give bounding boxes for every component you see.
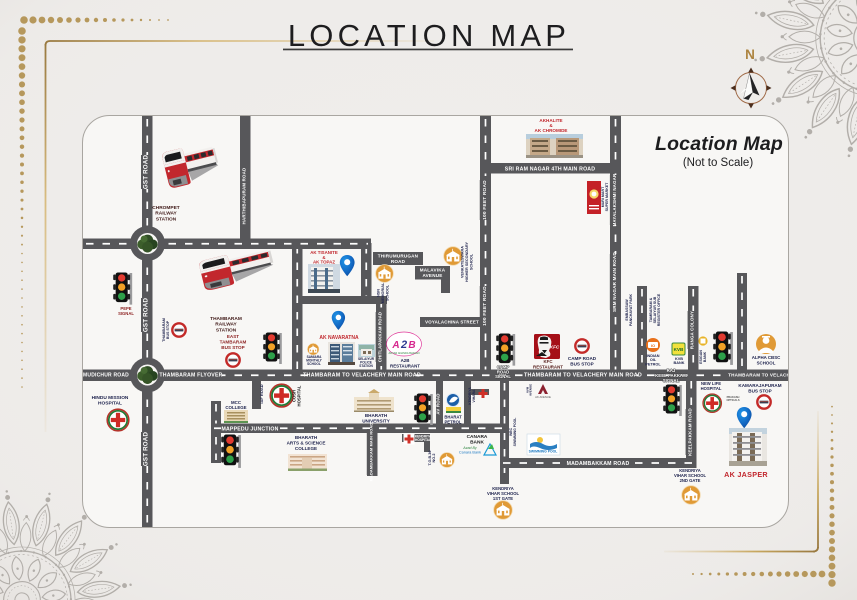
svg-text:MADAMBAKKAM ROAD: MADAMBAKKAM ROAD [567, 461, 630, 467]
svg-text:KFC: KFC [550, 345, 560, 350]
svg-text:CAMP ROAD: CAMP ROAD [568, 356, 597, 361]
svg-text:HOSPITAL: HOSPITAL [701, 386, 722, 391]
svg-text:N: N [745, 47, 755, 62]
svg-text:Canara Bank: Canara Bank [459, 451, 481, 455]
svg-text:SIGNAL: SIGNAL [663, 378, 680, 383]
svg-text:B: B [408, 340, 415, 351]
svg-text:Azad By: Azad By [462, 446, 477, 450]
svg-text:COLLEGE: COLLEGE [295, 446, 317, 451]
svg-text:RESTAURANT: RESTAURANT [390, 363, 420, 368]
svg-text:CHITLAPAKKAM ROAD: CHITLAPAKKAM ROAD [378, 312, 383, 362]
svg-text:STATION: STATION [216, 327, 237, 333]
svg-text:MUDICHUR ROAD: MUDICHUR ROAD [83, 373, 129, 379]
svg-text:ADYAR ANANDA BHAVAN: ADYAR ANANDA BHAVAN [389, 351, 420, 355]
svg-text:MEMORIAL: MEMORIAL [381, 282, 385, 303]
svg-text:AV ROAD: AV ROAD [436, 393, 441, 414]
svg-text:STATION: STATION [359, 364, 373, 368]
svg-text:BUS STOP: BUS STOP [221, 345, 244, 350]
svg-text:SWIMMING POOL: SWIMMING POOL [529, 450, 558, 454]
svg-text:KAMARAJAPURAM: KAMARAJAPURAM [738, 383, 781, 388]
svg-text:OPTICALS: OPTICALS [726, 398, 739, 402]
svg-text:AK CHROMIDE: AK CHROMIDE [535, 128, 568, 133]
svg-text:PANCHAYAT PARK: PANCHAYAT PARK [629, 293, 633, 326]
svg-text:GST ROAD: GST ROAD [143, 155, 150, 190]
svg-text:HOSPITAL: HOSPITAL [98, 401, 122, 407]
svg-text:THIRUMURUGAN: THIRUMURUGAN [378, 254, 419, 259]
svg-text:NSN: NSN [377, 289, 381, 297]
svg-text:AK AVENUE: AK AVENUE [535, 395, 551, 399]
svg-text:SRI RAM NAGAR 4TH MAIN ROAD: SRI RAM NAGAR 4TH MAIN ROAD [505, 167, 595, 173]
svg-text:THAMBARAM TO VELACHERY MAIN RO: THAMBARAM TO VELACHERY MAIN ROAD [524, 373, 642, 379]
svg-text:AK JASPER: AK JASPER [724, 470, 768, 479]
svg-text:T.G.B.30: T.G.B.30 [428, 451, 432, 466]
svg-text:MADAMBAKKAM MAIN ROAD: MADAMBAKKAM MAIN ROAD [370, 423, 374, 482]
svg-text:HARTHIBAPURAM ROAD: HARTHIBAPURAM ROAD [242, 168, 247, 225]
svg-text:BUS STOP: BUS STOP [570, 362, 593, 367]
svg-text:HOSPITAL: HOSPITAL [297, 385, 302, 406]
svg-text:NO.2: NO.2 [432, 454, 436, 463]
svg-text:IAF ROAD: IAF ROAD [259, 384, 264, 403]
svg-text:100 FEET ROAD: 100 FEET ROAD [482, 286, 488, 326]
svg-text:SCHOOL: SCHOOL [385, 284, 389, 301]
svg-text:HIGHER SECONDARY: HIGHER SECONDARY [465, 242, 469, 282]
svg-text:KFC: KFC [543, 359, 553, 364]
svg-text:CANARA: CANARA [467, 434, 488, 440]
svg-text:BHARATH: BHARATH [365, 413, 388, 418]
svg-text:EAST: EAST [227, 334, 239, 339]
svg-text:GST ROAD: GST ROAD [143, 432, 150, 467]
svg-text:UNIVERSITY: UNIVERSITY [362, 419, 390, 424]
svg-text:TAMBARAM: TAMBARAM [220, 340, 247, 345]
svg-text:2: 2 [400, 339, 407, 351]
svg-text:THAMBARAM: THAMBARAM [210, 316, 242, 322]
svg-text:STATION: STATION [156, 216, 177, 222]
svg-text:(Not to Scale): (Not to Scale) [683, 157, 753, 169]
svg-text:BANK: BANK [703, 351, 707, 362]
svg-text:SCHOOL: SCHOOL [469, 253, 473, 270]
svg-text:A: A [391, 340, 399, 351]
svg-text:MAYALAKSHMI NAGAR: MAYALAKSHMI NAGAR [612, 173, 617, 226]
svg-text:BANK: BANK [470, 440, 484, 446]
svg-text:RESTAURANT: RESTAURANT [533, 364, 563, 369]
svg-text:REGISTER OFFICE: REGISTER OFFICE [657, 293, 661, 326]
svg-text:MURI MART: MURI MART [601, 186, 605, 207]
svg-text:BHARATH: BHARATH [295, 435, 318, 440]
svg-text:VIHARA: VIHARA [472, 389, 476, 403]
svg-text:AK TOPAZ: AK TOPAZ [313, 260, 335, 265]
svg-text:ARTS & SCIENCE: ARTS & SCIENCE [287, 441, 326, 446]
svg-text:AVENUE: AVENUE [422, 273, 442, 278]
svg-text:HINDU MISSION: HINDU MISSION [92, 395, 129, 401]
svg-text:VENKATESWARA: VENKATESWARA [461, 246, 465, 278]
svg-text:Location Map: Location Map [655, 133, 783, 155]
svg-text:VOYALACHINA STREET: VOYALACHINA STREET [425, 320, 479, 325]
svg-text:RANGA COLONY: RANGA COLONY [690, 311, 695, 349]
svg-text:KVB: KVB [674, 347, 684, 352]
svg-text:SWIMMING POOL: SWIMMING POOL [513, 418, 517, 447]
svg-text:SCHOOL: SCHOOL [757, 360, 776, 365]
svg-text:SIGNAL: SIGNAL [495, 374, 511, 379]
svg-text:LOCATION MAP: LOCATION MAP [288, 18, 570, 53]
svg-text:AK NAVARATNA: AK NAVARATNA [319, 335, 359, 341]
svg-text:PETROL: PETROL [445, 420, 462, 425]
svg-text:PETROL: PETROL [645, 362, 661, 366]
svg-text:AVENUE: AVENUE [529, 384, 533, 396]
svg-text:MAPPEDU JUNCTION: MAPPEDU JUNCTION [221, 427, 278, 433]
svg-text:GST ROAD: GST ROAD [143, 298, 150, 333]
svg-text:SCHOOL: SCHOOL [307, 362, 321, 366]
svg-text:THAMBARAM FLYOVER: THAMBARAM FLYOVER [159, 373, 222, 379]
svg-text:HOSPITAL: HOSPITAL [415, 438, 431, 442]
svg-text:IO: IO [651, 343, 655, 348]
svg-text:CHROMPET: CHROMPET [152, 205, 180, 211]
svg-text:BANK: BANK [674, 361, 685, 365]
svg-text:BUS STOP: BUS STOP [166, 320, 170, 339]
svg-text:100 FEET ROAD: 100 FEET ROAD [482, 180, 488, 220]
svg-text:THAMBARAM TO VELACHERY MAIN RO: THAMBARAM TO VELACHERY MAIN ROAD [303, 373, 421, 379]
svg-text:ALPHA CBSC: ALPHA CBSC [752, 355, 781, 360]
svg-text:2ND GATE: 2ND GATE [680, 478, 701, 483]
svg-text:MALAVIKA: MALAVIKA [420, 268, 446, 273]
svg-text:BUS STOP: BUS STOP [748, 389, 771, 394]
svg-text:RAILWAY: RAILWAY [215, 322, 237, 328]
svg-text:SIGNAL: SIGNAL [118, 311, 134, 316]
svg-text:COLLEGE: COLLEGE [225, 405, 246, 410]
svg-text:KEELPAKKAM ROAD: KEELPAKKAM ROAD [688, 408, 693, 456]
svg-text:SRM NAGAR MAIN ROAD: SRM NAGAR MAIN ROAD [612, 252, 617, 312]
svg-text:SUPER MARKET: SUPER MARKET [605, 182, 609, 212]
svg-text:ROAD: ROAD [391, 259, 406, 264]
svg-text:RAILWAY: RAILWAY [155, 211, 177, 217]
svg-text:A2B: A2B [401, 358, 410, 363]
